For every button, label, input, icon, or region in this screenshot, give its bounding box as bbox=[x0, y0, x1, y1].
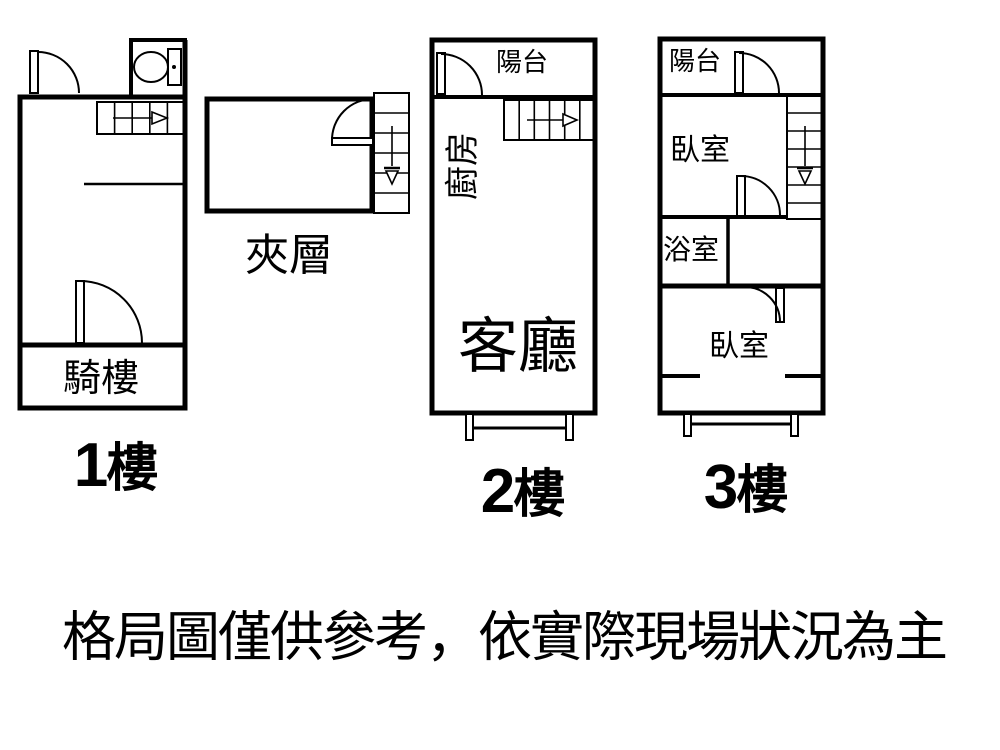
floor3-title: 3樓 bbox=[704, 457, 789, 519]
floor-plan-canvas: 騎樓 夾層 陽台 廚房 客廳 陽台 臥室 浴室 臥室 1樓 2樓 3樓 格局圖僅… bbox=[0, 0, 1000, 750]
mezzanine-label: 夾層 bbox=[245, 234, 333, 278]
mezzanine-plan bbox=[207, 93, 409, 213]
floor2-railing bbox=[466, 414, 573, 440]
railing-post bbox=[566, 414, 573, 440]
floor1-entry-door-icon bbox=[30, 51, 79, 93]
floor1-plan bbox=[18, 38, 187, 408]
door-leaf bbox=[737, 176, 745, 216]
railing-post bbox=[684, 414, 691, 436]
bathroom-label: 浴室 bbox=[663, 236, 719, 264]
door-leaf bbox=[437, 53, 445, 94]
bedroom-lower-label: 臥室 bbox=[709, 332, 769, 362]
door-leaf bbox=[30, 51, 38, 93]
floor1-title: 1樓 bbox=[74, 435, 159, 497]
floor2-title: 2樓 bbox=[481, 461, 566, 523]
floor1-suffix: 樓 bbox=[106, 440, 158, 498]
floor2-plan bbox=[430, 40, 597, 440]
door-leaf bbox=[332, 138, 373, 145]
floor2-number: 2 bbox=[481, 457, 513, 526]
arrow-down-icon bbox=[386, 171, 398, 184]
floor3-number: 3 bbox=[704, 453, 736, 522]
door-leaf bbox=[735, 52, 743, 93]
door-leaf bbox=[76, 281, 84, 343]
toilet-flush-button bbox=[172, 65, 176, 69]
mezzanine-outer-wall bbox=[207, 99, 372, 211]
disclaimer-text: 格局圖僅供參考，依實際現場狀況為主 bbox=[62, 593, 946, 672]
toilet-bowl bbox=[134, 52, 168, 82]
floor3-balcony-label: 陽台 bbox=[669, 48, 721, 74]
mezzanine-stairs-down-icon bbox=[374, 93, 409, 213]
railing-post bbox=[791, 414, 798, 436]
living-room-label: 客廳 bbox=[458, 317, 578, 377]
bedroom-upper-label: 臥室 bbox=[670, 136, 730, 166]
floor1-number: 1 bbox=[74, 431, 106, 500]
floor3-railing bbox=[684, 414, 798, 436]
floor2-balcony-label: 陽台 bbox=[496, 49, 548, 75]
door-swing-icon bbox=[38, 52, 79, 93]
arcade-room-label: 騎樓 bbox=[63, 360, 139, 398]
toilet-icon bbox=[134, 49, 181, 85]
floor2-suffix: 樓 bbox=[513, 466, 565, 524]
kitchen-label: 廚房 bbox=[446, 132, 480, 200]
floor3-suffix: 樓 bbox=[736, 462, 788, 520]
railing-post bbox=[466, 414, 473, 440]
